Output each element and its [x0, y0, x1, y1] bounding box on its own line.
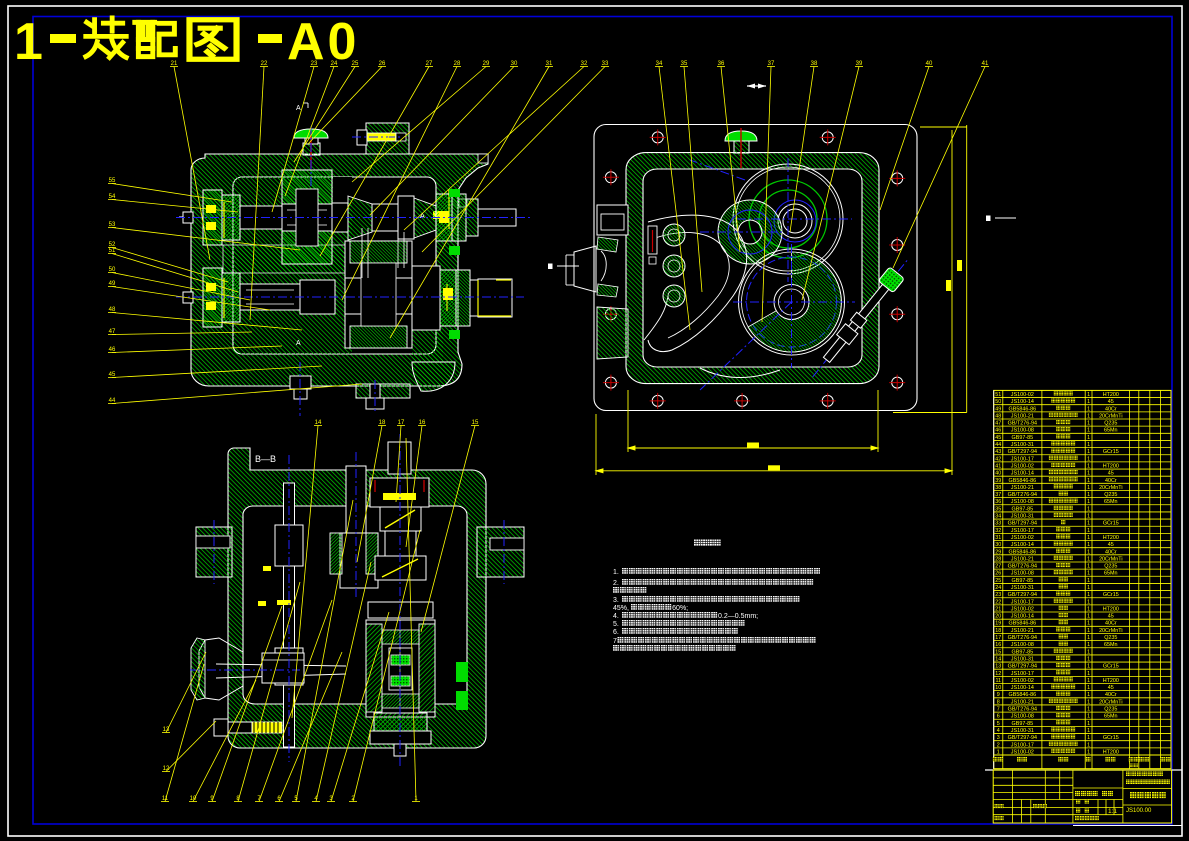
svg-text:1: 1 [1087, 678, 1090, 684]
svg-text:42: 42 [995, 456, 1001, 462]
svg-text:1: 1 [1087, 392, 1090, 398]
svg-text:17: 17 [398, 420, 405, 426]
svg-text:25: 25 [352, 61, 359, 67]
svg-text:GB/T276-94: GB/T276-94 [1008, 564, 1037, 570]
svg-text:1: 1 [1087, 707, 1090, 713]
svg-text:2.: 2. [613, 580, 619, 587]
svg-text:GB5846-86: GB5846-86 [1009, 406, 1037, 412]
svg-text:40Cr: 40Cr [1105, 621, 1117, 627]
svg-text:1: 1 [1087, 471, 1090, 477]
svg-text:32: 32 [581, 61, 588, 67]
svg-text:HT200: HT200 [1103, 392, 1119, 398]
svg-text:Q235: Q235 [1104, 564, 1117, 570]
svg-text:21: 21 [171, 61, 178, 67]
svg-text:JS100-08: JS100-08 [1011, 642, 1034, 648]
svg-text:20: 20 [995, 614, 1001, 620]
svg-text:GB/T276-94: GB/T276-94 [1008, 421, 1037, 427]
svg-text:20CrMnTi: 20CrMnTi [1099, 485, 1122, 491]
svg-text:21: 21 [995, 606, 1001, 612]
svg-text:33: 33 [602, 61, 609, 67]
svg-text:35: 35 [681, 61, 688, 67]
svg-text:JS100-14: JS100-14 [1011, 542, 1034, 548]
svg-text:1: 1 [1087, 599, 1090, 605]
svg-text:41: 41 [995, 463, 1001, 469]
svg-text:28: 28 [454, 61, 461, 67]
svg-text:23: 23 [311, 61, 318, 67]
svg-text:26: 26 [379, 61, 386, 67]
svg-text:35: 35 [995, 506, 1001, 512]
svg-text:31: 31 [546, 61, 553, 67]
svg-text:65Mn: 65Mn [1104, 642, 1118, 648]
svg-text:1: 1 [1087, 535, 1090, 541]
svg-text:1: 1 [1087, 428, 1090, 434]
svg-text:1: 1 [1087, 606, 1090, 612]
svg-text:1: 1 [1087, 656, 1090, 662]
svg-text:GCr15: GCr15 [1103, 592, 1119, 598]
svg-text:3.: 3. [613, 597, 619, 604]
svg-text:GCr15: GCr15 [1103, 664, 1119, 670]
svg-text:1: 1 [1087, 585, 1090, 591]
svg-text:40Cr: 40Cr [1105, 478, 1117, 484]
svg-text:26: 26 [995, 571, 1001, 577]
svg-text:19: 19 [995, 621, 1001, 627]
svg-text:23: 23 [995, 592, 1001, 598]
svg-text:29: 29 [483, 61, 490, 67]
svg-text:1: 1 [14, 13, 43, 71]
svg-text:1: 1 [1087, 514, 1090, 520]
svg-text:GCr15: GCr15 [1103, 521, 1119, 527]
svg-text:1: 1 [1087, 506, 1090, 512]
svg-text:JS100-02: JS100-02 [1011, 535, 1034, 541]
svg-text:Q235: Q235 [1104, 421, 1117, 427]
svg-text:JS100-17: JS100-17 [1011, 456, 1034, 462]
svg-text:JS100.00: JS100.00 [1126, 808, 1152, 814]
svg-text:JS100-17: JS100-17 [1011, 742, 1034, 748]
svg-text:JS100-21: JS100-21 [1011, 485, 1034, 491]
svg-text:40Cr: 40Cr [1105, 406, 1117, 412]
svg-text:GB/T276-94: GB/T276-94 [1008, 635, 1037, 641]
svg-text:39: 39 [856, 61, 863, 67]
svg-text:HT200: HT200 [1103, 463, 1119, 469]
svg-text:51: 51 [109, 248, 116, 254]
svg-text:1: 1 [1087, 449, 1090, 455]
svg-text:37: 37 [995, 492, 1001, 498]
svg-text:JS100-14: JS100-14 [1011, 685, 1034, 691]
svg-text:45%,: 45%, [613, 605, 629, 612]
svg-text:JS100-21: JS100-21 [1011, 413, 1034, 419]
svg-text:33: 33 [995, 521, 1001, 527]
svg-text:36: 36 [995, 499, 1001, 505]
svg-text:48: 48 [109, 307, 116, 313]
svg-text:34: 34 [656, 61, 663, 67]
svg-text:HT200: HT200 [1103, 535, 1119, 541]
svg-text:12: 12 [163, 766, 170, 772]
svg-text:10: 10 [995, 685, 1001, 691]
svg-text:1: 1 [1087, 499, 1090, 505]
svg-text:JS100-14: JS100-14 [1011, 399, 1034, 405]
svg-text:4.: 4. [613, 613, 619, 620]
svg-text:32: 32 [995, 528, 1001, 534]
svg-text:20CrMnTi: 20CrMnTi [1099, 413, 1122, 419]
svg-text:49: 49 [109, 281, 116, 287]
svg-text:65Mn: 65Mn [1104, 499, 1118, 505]
svg-text:44: 44 [109, 398, 116, 404]
svg-text:GCr15: GCr15 [1103, 449, 1119, 455]
svg-text:31: 31 [995, 535, 1001, 541]
svg-text:51: 51 [995, 392, 1001, 398]
svg-text:22: 22 [261, 61, 268, 67]
svg-text:GB/T276-94: GB/T276-94 [1008, 707, 1037, 713]
svg-text:GB97-85: GB97-85 [1012, 721, 1034, 727]
svg-text:27: 27 [426, 61, 433, 67]
svg-text:40: 40 [995, 471, 1001, 477]
svg-text:10: 10 [190, 796, 197, 802]
svg-text:18: 18 [379, 420, 386, 426]
svg-text:1: 1 [1087, 542, 1090, 548]
svg-text:53: 53 [109, 222, 116, 228]
svg-text:Φ62: Φ62 [445, 290, 451, 300]
svg-text:37: 37 [768, 61, 775, 67]
svg-text:3: 3 [997, 735, 1000, 741]
svg-text:36: 36 [718, 61, 725, 67]
svg-text:45: 45 [1108, 471, 1114, 477]
svg-text:HT200: HT200 [1103, 606, 1119, 612]
svg-text:0.2—0.5mm;: 0.2—0.5mm; [718, 613, 758, 620]
svg-text:B—B: B—B [255, 454, 276, 464]
svg-text:24: 24 [331, 61, 338, 67]
svg-text:5: 5 [997, 721, 1000, 727]
svg-text:6.: 6. [613, 629, 619, 636]
svg-text:JS100-17: JS100-17 [1011, 528, 1034, 534]
svg-text:1: 1 [1087, 642, 1090, 648]
svg-text:GB97-85: GB97-85 [1012, 435, 1034, 441]
svg-text:JS100-21: JS100-21 [1011, 556, 1034, 562]
svg-text:1: 1 [1087, 621, 1090, 627]
svg-text:1: 1 [1087, 742, 1090, 748]
svg-text:25: 25 [995, 578, 1001, 584]
svg-text:1: 1 [1087, 399, 1090, 405]
svg-text:JS100-14: JS100-14 [1011, 614, 1034, 620]
svg-text:60%;: 60%; [672, 605, 688, 612]
svg-text:50: 50 [995, 399, 1001, 405]
svg-text:18: 18 [995, 628, 1001, 634]
svg-text:GB5846-86: GB5846-86 [1009, 478, 1037, 484]
svg-text:1: 1 [1087, 592, 1090, 598]
svg-text:JS100-08: JS100-08 [1011, 499, 1034, 505]
svg-text:41: 41 [982, 61, 989, 67]
svg-text:1: 1 [1087, 628, 1090, 634]
svg-text:14: 14 [315, 420, 322, 426]
svg-text:20CrMnTi: 20CrMnTi [1099, 556, 1122, 562]
svg-text:1: 1 [1087, 492, 1090, 498]
svg-text:1: 1 [1087, 692, 1090, 698]
svg-text:GB97-85: GB97-85 [1012, 649, 1034, 655]
svg-text:JS100-17: JS100-17 [1011, 671, 1034, 677]
svg-text:Q235: Q235 [1104, 492, 1117, 498]
svg-text:39: 39 [995, 478, 1001, 484]
svg-text:45: 45 [1108, 685, 1114, 691]
svg-text:1: 1 [1087, 578, 1090, 584]
svg-text:GB/T297-94: GB/T297-94 [1008, 664, 1037, 670]
svg-text:40Cr: 40Cr [1105, 549, 1117, 555]
svg-text:1: 1 [1087, 564, 1090, 570]
svg-text:28: 28 [995, 556, 1001, 562]
svg-text:6: 6 [997, 714, 1000, 720]
svg-text:1: 1 [1087, 435, 1090, 441]
svg-text:1: 1 [1087, 714, 1090, 720]
svg-text:1: 1 [1087, 685, 1090, 691]
svg-text:49: 49 [995, 406, 1001, 412]
svg-text:1: 1 [1087, 463, 1090, 469]
svg-text:1: 1 [1087, 635, 1090, 641]
svg-text:GB5846-86: GB5846-86 [1009, 549, 1037, 555]
svg-text:JS100-02: JS100-02 [1011, 606, 1034, 612]
svg-text:45: 45 [1108, 614, 1114, 620]
svg-text:GB5846-86: GB5846-86 [1009, 692, 1037, 698]
svg-text:JS100-31: JS100-31 [1011, 656, 1034, 662]
svg-text:45: 45 [109, 372, 116, 378]
svg-text:A0: A0 [287, 13, 359, 71]
svg-text:GB5846-86: GB5846-86 [1009, 621, 1037, 627]
svg-text:65Mn: 65Mn [1104, 428, 1118, 434]
svg-text:GB97-85: GB97-85 [1012, 578, 1034, 584]
svg-text:JS100-02: JS100-02 [1011, 392, 1034, 398]
svg-text:GCr15: GCr15 [1103, 735, 1119, 741]
svg-text:1: 1 [1087, 456, 1090, 462]
svg-text:29: 29 [995, 549, 1001, 555]
svg-text:1: 1 [1087, 699, 1090, 705]
svg-text:HT200: HT200 [1103, 678, 1119, 684]
svg-text:44: 44 [995, 442, 1001, 448]
svg-text:46: 46 [109, 347, 116, 353]
svg-text:1: 1 [1087, 528, 1090, 534]
svg-text:15: 15 [995, 649, 1001, 655]
svg-text:1: 1 [1087, 406, 1090, 412]
svg-text:16: 16 [995, 642, 1001, 648]
svg-text:1: 1 [1087, 549, 1090, 555]
svg-text:55: 55 [109, 178, 116, 184]
svg-text:1: 1 [1087, 664, 1090, 670]
svg-text:11: 11 [162, 796, 169, 802]
svg-text:7: 7 [997, 707, 1000, 713]
svg-text:JS100-21: JS100-21 [1011, 628, 1034, 634]
svg-text:12: 12 [995, 671, 1001, 677]
svg-text:54: 54 [109, 194, 116, 200]
svg-text:1: 1 [1087, 728, 1090, 734]
svg-text:45: 45 [1108, 399, 1114, 405]
svg-text:Q235: Q235 [1104, 707, 1117, 713]
svg-text:48: 48 [995, 413, 1001, 419]
svg-text:30: 30 [995, 542, 1001, 548]
svg-text:Q235: Q235 [1104, 635, 1117, 641]
svg-text:GB/T297-94: GB/T297-94 [1008, 735, 1037, 741]
svg-text:30: 30 [511, 61, 518, 67]
svg-text:JS100-02: JS100-02 [1011, 678, 1034, 684]
svg-text:1: 1 [1087, 478, 1090, 484]
svg-text:GB/T297-94: GB/T297-94 [1008, 521, 1037, 527]
svg-text:38: 38 [811, 61, 818, 67]
svg-text:A: A [420, 213, 425, 220]
svg-text:1:1: 1:1 [1108, 808, 1117, 815]
svg-text:15: 15 [472, 420, 479, 426]
svg-text:2: 2 [997, 742, 1000, 748]
svg-text:8: 8 [997, 699, 1000, 705]
svg-text:50: 50 [109, 267, 116, 273]
svg-text:7: 7 [613, 638, 617, 645]
svg-text:GB/T297-94: GB/T297-94 [1008, 592, 1037, 598]
svg-text:45: 45 [1108, 542, 1114, 548]
svg-text:65Mn: 65Mn [1104, 571, 1118, 577]
svg-text:47: 47 [109, 329, 116, 335]
svg-text:JS100-08: JS100-08 [1011, 714, 1034, 720]
svg-text:JS100-08: JS100-08 [1011, 571, 1034, 577]
svg-text:1: 1 [1087, 521, 1090, 527]
svg-text:13: 13 [163, 727, 170, 733]
svg-text:GB97-85: GB97-85 [1012, 506, 1034, 512]
svg-text:11: 11 [995, 678, 1001, 684]
svg-text:65Mn: 65Mn [1104, 714, 1118, 720]
svg-text:1: 1 [1087, 413, 1090, 419]
svg-text:1: 1 [1087, 421, 1090, 427]
svg-text:22: 22 [995, 599, 1001, 605]
svg-text:24: 24 [995, 585, 1001, 591]
svg-text:1: 1 [1087, 571, 1090, 577]
svg-text:1: 1 [1087, 556, 1090, 562]
svg-text:1.: 1. [613, 569, 619, 576]
svg-text:13: 13 [995, 664, 1001, 670]
svg-text:JS100-17: JS100-17 [1011, 599, 1034, 605]
svg-text:20CrMnTi: 20CrMnTi [1099, 699, 1122, 705]
svg-text:1: 1 [1087, 735, 1090, 741]
svg-text:5.: 5. [613, 621, 619, 628]
svg-text:JS100-31: JS100-31 [1011, 728, 1034, 734]
svg-text:JS100-14: JS100-14 [1011, 471, 1034, 477]
svg-text:43: 43 [995, 449, 1001, 455]
svg-text:A: A [296, 340, 301, 347]
svg-text:JS100-21: JS100-21 [1011, 699, 1034, 705]
svg-text:40: 40 [926, 61, 933, 67]
svg-text:20CrMnTi: 20CrMnTi [1099, 628, 1122, 634]
svg-text:47: 47 [995, 421, 1001, 427]
svg-text:1: 1 [1087, 485, 1090, 491]
svg-text:38: 38 [995, 485, 1001, 491]
svg-text:34: 34 [995, 514, 1001, 520]
svg-text:JS100-31: JS100-31 [1011, 514, 1034, 520]
svg-text:JS100-31: JS100-31 [1011, 442, 1034, 448]
svg-text:1: 1 [1087, 671, 1090, 677]
svg-text:1: 1 [1087, 649, 1090, 655]
svg-text:GB/T276-94: GB/T276-94 [1008, 492, 1037, 498]
svg-text:9: 9 [997, 692, 1000, 698]
svg-text:45: 45 [995, 435, 1001, 441]
svg-text:16: 16 [419, 420, 426, 426]
svg-text:1: 1 [1087, 721, 1090, 727]
svg-text:17: 17 [995, 635, 1001, 641]
svg-text:40Cr: 40Cr [1105, 692, 1117, 698]
svg-text:GB/T297-94: GB/T297-94 [1008, 449, 1037, 455]
svg-text:4: 4 [997, 728, 1000, 734]
svg-text:1: 1 [1087, 442, 1090, 448]
svg-text:1: 1 [1087, 614, 1090, 620]
svg-text:46: 46 [995, 428, 1001, 434]
svg-text:27: 27 [995, 564, 1001, 570]
svg-text:JS100-31: JS100-31 [1011, 585, 1034, 591]
svg-text:JS100-02: JS100-02 [1011, 463, 1034, 469]
svg-text:A: A [296, 105, 301, 112]
svg-text:14: 14 [995, 656, 1001, 662]
svg-text:JS100-08: JS100-08 [1011, 428, 1034, 434]
